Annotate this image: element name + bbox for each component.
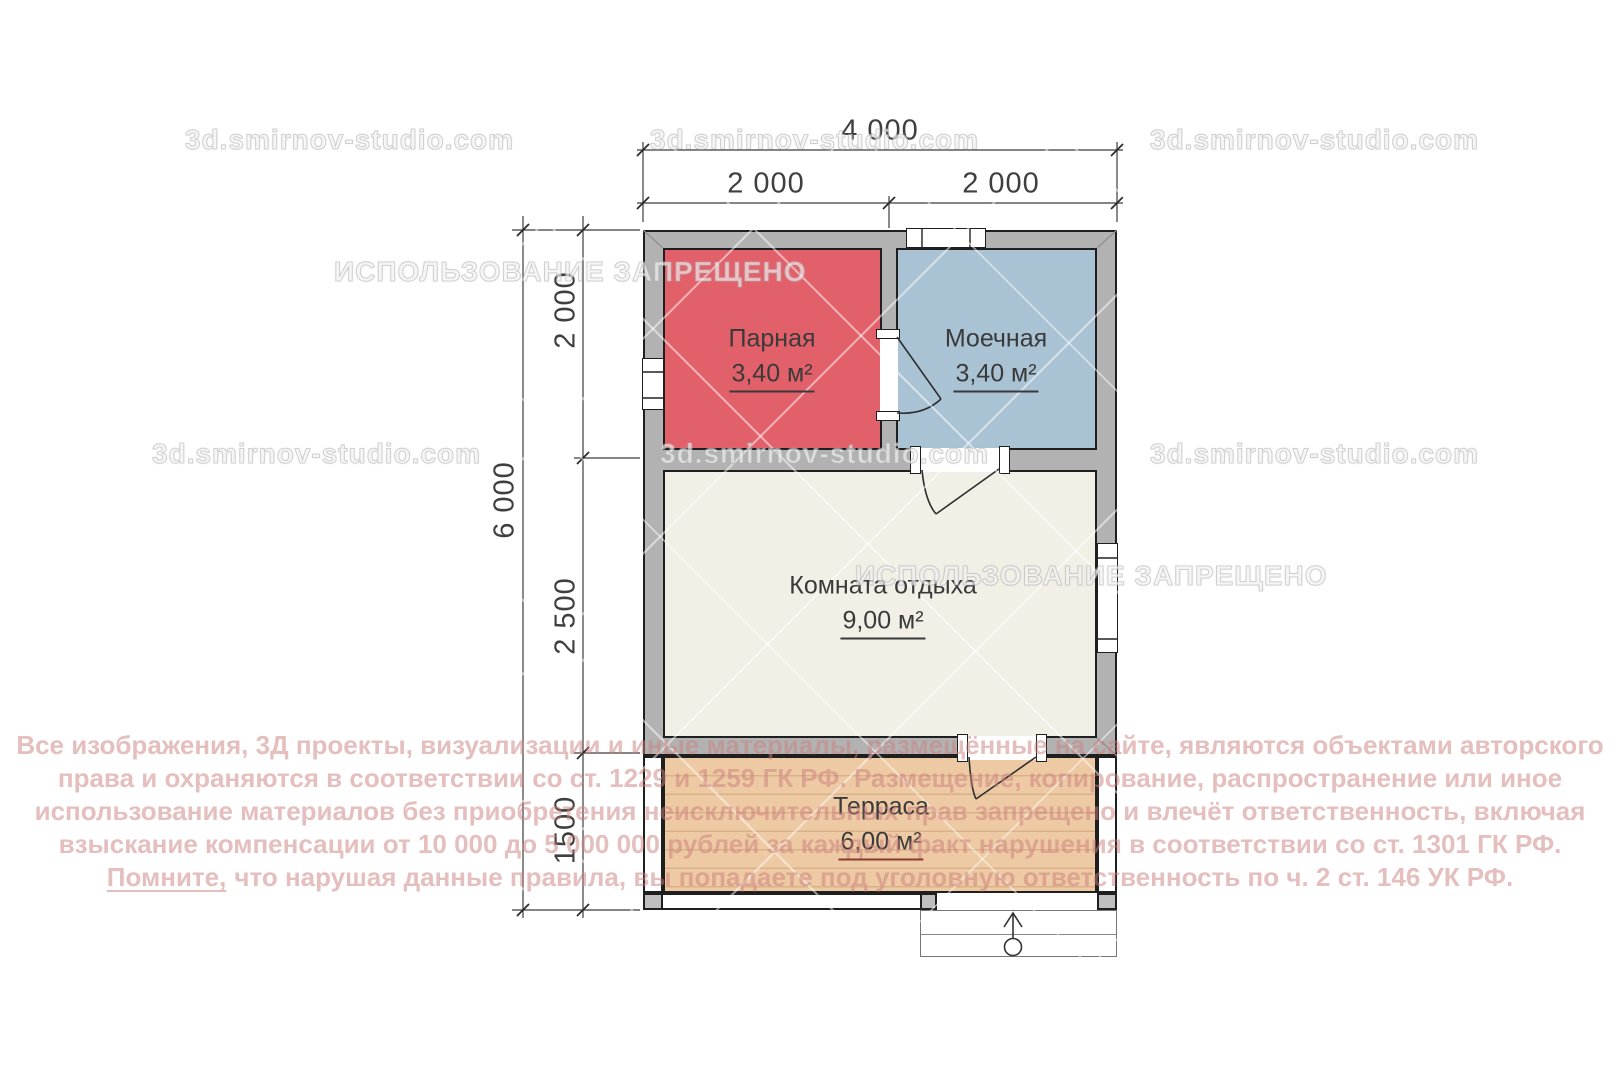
door-opening-komnata-terrasa — [967, 736, 1037, 760]
door-jamb — [876, 411, 900, 421]
dim-left-middle: 2 500 — [550, 577, 583, 655]
room-area-moechnaya: 3,40 м² — [953, 360, 1038, 393]
room-area-value: 3,40 м² — [729, 360, 814, 393]
dim-top-right: 2 000 — [962, 168, 1040, 201]
dim-left-total: 6 000 — [489, 461, 522, 539]
room-area-komnata: 9,00 м² — [840, 607, 925, 640]
watermark-site: 3d.smirnov-studio.com — [1150, 124, 1479, 156]
dim-top-total: 4 000 — [841, 115, 919, 148]
room-label-parnaya: Парная — [728, 325, 815, 354]
door-jamb — [910, 446, 921, 474]
window-top — [906, 228, 986, 248]
terrace-rail-bottom — [643, 893, 937, 910]
entrance-steps — [920, 910, 1117, 957]
room-label-moechnaya: Моечная — [945, 325, 1047, 354]
terrace-rail-right — [1097, 756, 1117, 893]
door-jamb — [1036, 734, 1047, 762]
copyright-line5-lead: Помните, — [107, 862, 227, 892]
room-komnata — [663, 470, 1097, 738]
dim-left-upper: 2 000 — [550, 271, 583, 349]
door-opening-moechnaya-komnata — [920, 448, 1000, 472]
window-left — [642, 358, 664, 410]
door-opening-parnaya-moechnaya — [880, 338, 898, 412]
watermark-site: 3d.smirnov-studio.com — [1150, 438, 1479, 470]
room-area-value: 9,00 м² — [840, 607, 925, 640]
room-terrasa — [663, 756, 1097, 893]
room-area-value: 3,40 м² — [953, 360, 1038, 393]
room-label-terrasa: Терраса — [833, 793, 929, 822]
window-right — [1097, 543, 1118, 653]
watermark-site: 3d.smirnov-studio.com — [650, 124, 979, 156]
dim-left-lower: 1500 — [550, 796, 583, 865]
terrace-post — [1097, 893, 1117, 910]
room-label-komnata: Комната отдыха — [789, 572, 977, 601]
door-jamb — [876, 329, 900, 339]
terrace-post — [643, 893, 663, 910]
door-jamb — [957, 734, 968, 762]
room-area-value: 6,00 м² — [838, 828, 923, 861]
terrace-post — [920, 893, 937, 910]
terrace-rail-left — [643, 756, 663, 893]
watermark-site: 3d.smirnov-studio.com — [152, 438, 481, 470]
room-area-parnaya: 3,40 м² — [729, 360, 814, 393]
dim-top-left: 2 000 — [727, 168, 805, 201]
door-jamb — [999, 446, 1010, 474]
watermark-site: 3d.smirnov-studio.com — [185, 124, 514, 156]
room-area-terrasa: 6,00 м² — [838, 828, 923, 861]
floor-plan: 4 000 2 000 2 000 6 000 2 000 2 500 1500… — [0, 0, 1620, 1080]
